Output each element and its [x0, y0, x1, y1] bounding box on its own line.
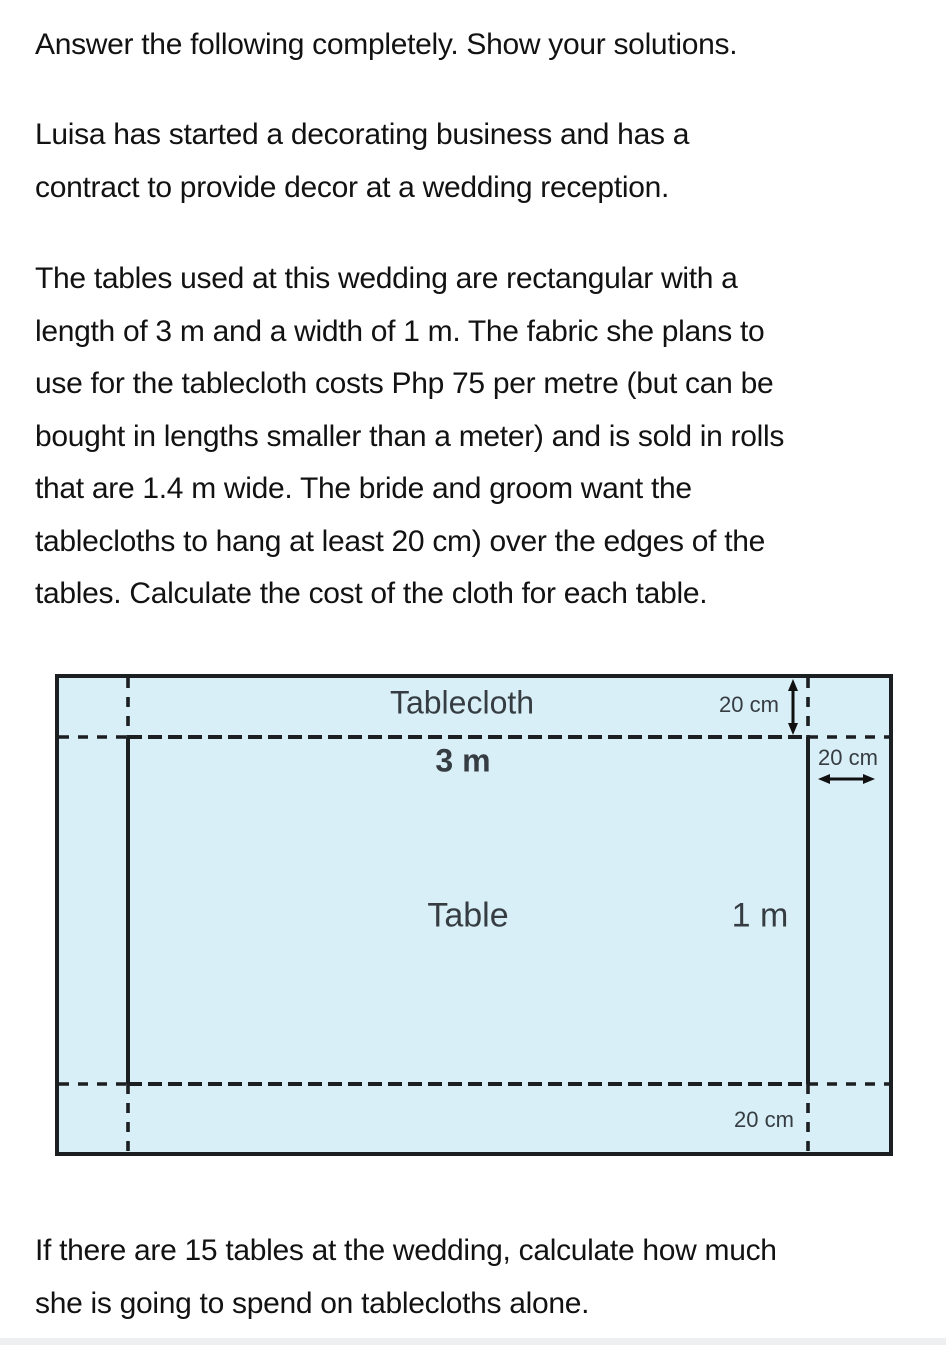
table-label: Table — [427, 897, 508, 936]
overhang-top-label: 20 cm — [719, 692, 779, 718]
bottom-edge-strip — [0, 1338, 946, 1345]
instruction-text: Answer the following completely. Show yo… — [35, 19, 737, 72]
overhang-top-arrow — [788, 679, 798, 735]
details-paragraph: The tables used at this wedding are rect… — [35, 253, 784, 621]
overhang-bottom-label: 20 cm — [734, 1107, 794, 1133]
worksheet-page: { "problem": { "instruction": "Answer th… — [0, 0, 946, 1345]
table-length-label: 3 m — [435, 743, 490, 780]
overhang-right-arrow — [818, 774, 875, 784]
overhang-right-label: 20 cm — [818, 745, 878, 771]
tablecloth-label: Tablecloth — [390, 685, 534, 722]
tablecloth-diagram: Tablecloth 20 cm 3 m 20 cm Table 1 m 20 … — [55, 674, 893, 1156]
table-width-label: 1 m — [732, 897, 789, 936]
intro-paragraph: Luisa has started a decorating business … — [35, 109, 689, 214]
followup-paragraph: If there are 15 tables at the wedding, c… — [35, 1225, 777, 1330]
